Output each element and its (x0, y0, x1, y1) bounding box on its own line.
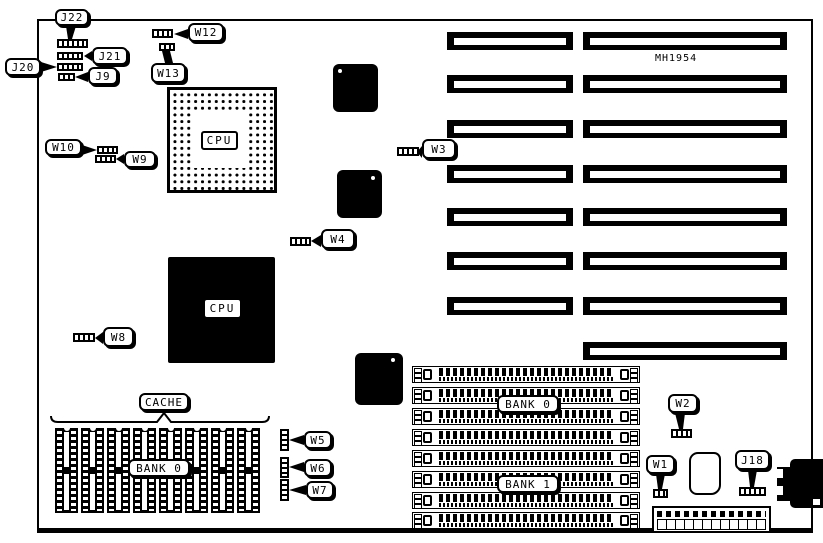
simm-latch (620, 369, 629, 380)
simm-end (630, 452, 638, 467)
isa-slot (583, 297, 787, 315)
isa-slot (583, 32, 787, 50)
slot-stripe (590, 38, 780, 45)
jumper-w8 (73, 333, 95, 342)
power-connector-terminals (657, 519, 766, 530)
simm-end (630, 514, 638, 529)
simm-end (414, 514, 422, 529)
ic-chip (337, 170, 382, 218)
slot-stripe (590, 214, 780, 221)
jumper-w12 (152, 29, 173, 38)
power-connector-pins (657, 511, 766, 517)
simm-latch (423, 495, 432, 506)
simm-end (630, 431, 638, 446)
cache-notch (168, 428, 174, 431)
label-j22: J22 (55, 9, 89, 26)
label-w7: W7 (306, 481, 334, 499)
slot-stripe (454, 126, 566, 133)
cache-pins (239, 431, 244, 511)
cache-socket (237, 428, 260, 513)
simm-end (630, 368, 638, 383)
simm-socket (412, 450, 640, 467)
simm-latch (620, 390, 629, 401)
cache-pins (253, 431, 258, 511)
isa-slot (447, 208, 573, 226)
label-w9: W9 (124, 151, 156, 168)
simm-socket (412, 366, 640, 383)
cache-bank-label: BANK 0 (128, 459, 190, 477)
simm-latch (423, 369, 432, 380)
cache-socket (211, 428, 234, 513)
simm-pins (439, 368, 613, 376)
label-w4: W4 (321, 229, 355, 249)
label-w8: W8 (103, 327, 134, 347)
isa-slot (583, 342, 787, 360)
jumper-j21 (57, 52, 83, 60)
memory-bank0-label: BANK 0 (497, 395, 559, 413)
label-w5: W5 (304, 431, 332, 449)
jumper-w5 (280, 429, 289, 451)
connector-notch (777, 469, 783, 478)
simm-end (414, 452, 422, 467)
jumper-w4 (290, 237, 311, 246)
connector-notch (813, 499, 820, 505)
isa-slot (583, 208, 787, 226)
slot-stripe (590, 303, 780, 310)
label-j18: J18 (735, 450, 770, 470)
cache-divider (220, 467, 225, 474)
simm-pins (439, 377, 613, 381)
pin1-dot (371, 176, 375, 180)
simm-end (630, 410, 638, 425)
slot-stripe (590, 348, 780, 355)
jumper-w10 (97, 146, 118, 154)
cache-pins (71, 431, 76, 511)
simm-pins (439, 440, 613, 444)
cache-socket (107, 428, 130, 513)
jumper-w9 (95, 155, 116, 163)
slot-stripe (590, 81, 780, 88)
power-connector (652, 506, 771, 533)
simm-latch (423, 515, 432, 526)
part-number-text: MH1954 (655, 53, 697, 64)
simm-end (630, 389, 638, 404)
simm-pins (439, 514, 613, 522)
isa-slot (447, 32, 573, 50)
simm-pins (439, 503, 613, 507)
label-w6: W6 (304, 459, 332, 477)
simm-latch (620, 411, 629, 422)
jumper-w6 (280, 457, 289, 478)
jumper-j22 (57, 39, 88, 48)
cache-label: CACHE (139, 393, 189, 411)
label-w13: W13 (151, 63, 186, 83)
simm-pins (439, 452, 613, 460)
cache-divider (90, 467, 95, 474)
cache-pins (227, 431, 232, 511)
simm-latch (620, 474, 629, 485)
simm-pins (439, 494, 613, 502)
cache-notch (246, 428, 252, 431)
slot-stripe (454, 38, 566, 45)
label-w10: W10 (45, 139, 82, 156)
slot-stripe (454, 171, 566, 178)
cache-pins (213, 431, 218, 511)
memory-bank1-label: BANK 1 (497, 475, 559, 493)
oscillator-outline (689, 452, 721, 495)
cpu-socket-label: CPU (201, 131, 238, 150)
isa-slot (583, 165, 787, 183)
isa-slot (447, 297, 573, 315)
isa-slot (583, 120, 787, 138)
simm-end (414, 473, 422, 488)
slot-stripe (454, 303, 566, 310)
ic-chip (333, 64, 378, 112)
cache-pins (201, 431, 206, 511)
cache-pins (97, 431, 102, 511)
cache-socket (81, 428, 104, 513)
simm-socket (412, 492, 640, 509)
jumper-w13 (159, 43, 175, 51)
simm-pins (439, 461, 613, 465)
label-w1: W1 (646, 455, 675, 474)
keyboard-connector (777, 459, 823, 508)
jumper-w3 (397, 147, 419, 156)
isa-slot (447, 120, 573, 138)
cache-pins (83, 431, 88, 511)
simm-end (414, 389, 422, 404)
jumper-w7 (280, 479, 289, 501)
simm-socket (412, 429, 640, 446)
simm-socket (412, 512, 640, 529)
connector-notch (777, 486, 783, 495)
motherboard-diagram: MH1954 CPU CPU (0, 0, 823, 543)
isa-slot (583, 75, 787, 93)
simm-latch (423, 432, 432, 443)
label-j21: J21 (92, 47, 128, 65)
slot-stripe (454, 258, 566, 265)
cache-notch (142, 428, 148, 431)
slot-stripe (454, 81, 566, 88)
cache-divider (64, 467, 69, 474)
label-w2: W2 (668, 394, 698, 413)
cpu-chip-label: CPU (204, 299, 241, 318)
isa-slot (583, 252, 787, 270)
cache-divider (246, 467, 251, 474)
cache-notch (116, 428, 122, 431)
cache-notch (64, 428, 70, 431)
slot-stripe (590, 126, 780, 133)
cache-divider (194, 467, 199, 474)
label-j20: J20 (5, 58, 41, 76)
slot-stripe (454, 214, 566, 221)
isa-slot (447, 252, 573, 270)
jumper-j18 (739, 487, 766, 496)
simm-latch (620, 495, 629, 506)
simm-end (630, 494, 638, 509)
cache-socket (55, 428, 78, 513)
cache-divider (116, 467, 121, 474)
label-j9: J9 (88, 67, 118, 85)
isa-slot (447, 165, 573, 183)
cache-pins (57, 431, 62, 511)
simm-pins (439, 431, 613, 439)
pin1-dot (338, 69, 342, 73)
label-w3: W3 (422, 139, 456, 159)
ic-chip (355, 353, 403, 405)
simm-pins (439, 419, 613, 423)
simm-latch (423, 474, 432, 485)
slot-stripe (590, 258, 780, 265)
simm-latch (620, 453, 629, 464)
cache-pins (109, 431, 114, 511)
jumper-w2 (671, 429, 692, 438)
label-w12: W12 (188, 23, 224, 42)
simm-end (630, 473, 638, 488)
simm-end (414, 431, 422, 446)
pin1-dot (391, 358, 395, 362)
cache-notch (220, 428, 226, 431)
jumper-w1 (653, 489, 668, 498)
simm-latch (423, 390, 432, 401)
simm-latch (423, 411, 432, 422)
simm-end (414, 368, 422, 383)
cache-notch (90, 428, 96, 431)
simm-end (414, 410, 422, 425)
simm-latch (423, 453, 432, 464)
simm-latch (620, 432, 629, 443)
simm-pins (439, 523, 613, 527)
cache-notch (194, 428, 200, 431)
isa-slot (447, 75, 573, 93)
jumper-j9 (58, 73, 75, 81)
jumper-j20 (57, 63, 83, 71)
simm-end (414, 494, 422, 509)
slot-stripe (590, 171, 780, 178)
simm-latch (620, 515, 629, 526)
